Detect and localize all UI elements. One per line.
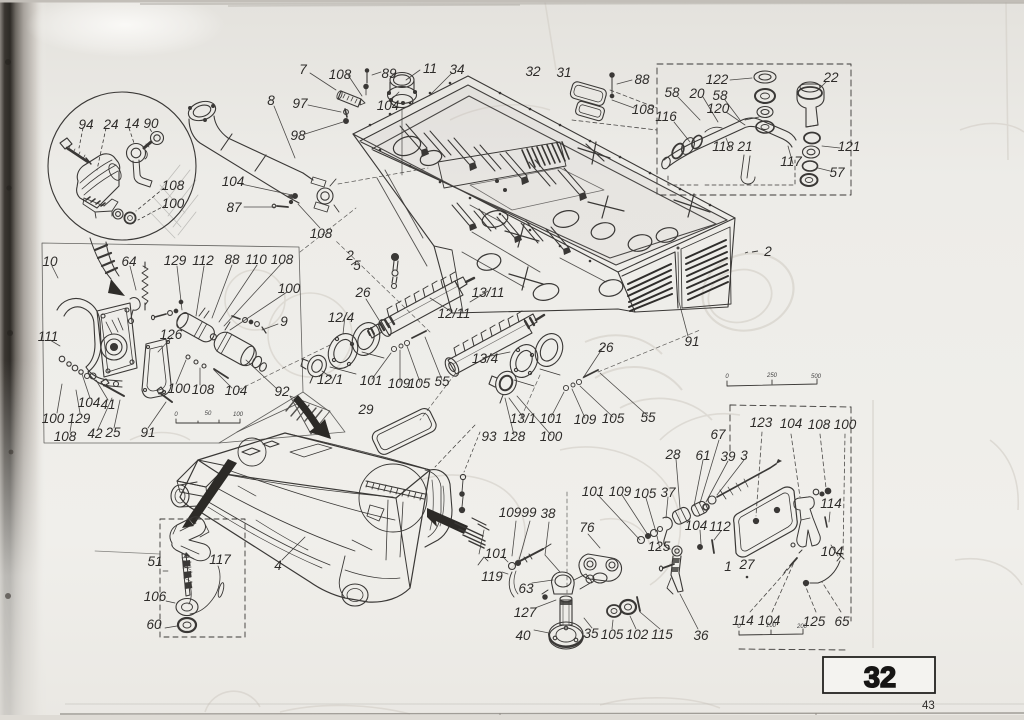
svg-text:11: 11 bbox=[423, 61, 437, 76]
svg-text:108: 108 bbox=[808, 417, 831, 432]
svg-text:109: 109 bbox=[609, 484, 632, 499]
svg-text:200: 200 bbox=[796, 624, 808, 630]
svg-text:12/11: 12/11 bbox=[438, 306, 471, 321]
svg-text:111: 111 bbox=[38, 329, 59, 344]
svg-text:55: 55 bbox=[434, 374, 450, 389]
svg-text:101: 101 bbox=[485, 546, 508, 561]
svg-text:100: 100 bbox=[233, 412, 244, 418]
svg-text:13/4: 13/4 bbox=[472, 351, 498, 366]
svg-text:108: 108 bbox=[329, 67, 352, 82]
svg-text:108: 108 bbox=[162, 178, 185, 193]
svg-text:128: 128 bbox=[503, 429, 526, 444]
svg-text:100: 100 bbox=[42, 411, 65, 426]
svg-text:118: 118 bbox=[712, 139, 734, 154]
svg-text:34: 34 bbox=[449, 62, 464, 77]
svg-text:88: 88 bbox=[224, 252, 240, 267]
svg-text:106: 106 bbox=[144, 589, 167, 604]
svg-text:108: 108 bbox=[54, 429, 77, 444]
svg-text:109: 109 bbox=[499, 505, 522, 520]
svg-text:88: 88 bbox=[634, 72, 650, 87]
svg-text:24: 24 bbox=[102, 117, 118, 132]
svg-text:100: 100 bbox=[168, 381, 191, 396]
svg-text:122: 122 bbox=[706, 72, 729, 87]
svg-text:21: 21 bbox=[736, 139, 752, 154]
svg-text:13/11: 13/11 bbox=[472, 285, 505, 300]
svg-text:65: 65 bbox=[834, 614, 850, 629]
svg-text:121: 121 bbox=[838, 139, 861, 154]
svg-text:104: 104 bbox=[377, 98, 400, 113]
svg-text:91: 91 bbox=[684, 334, 699, 349]
svg-text:32: 32 bbox=[525, 64, 541, 79]
svg-text:112: 112 bbox=[709, 519, 731, 534]
svg-text:29: 29 bbox=[357, 402, 374, 417]
svg-text:51: 51 bbox=[147, 554, 162, 569]
svg-text:4: 4 bbox=[274, 558, 282, 573]
svg-text:101: 101 bbox=[582, 484, 605, 499]
svg-text:38: 38 bbox=[540, 506, 556, 521]
svg-text:104: 104 bbox=[821, 544, 844, 559]
svg-text:91: 91 bbox=[140, 425, 155, 440]
svg-text:110: 110 bbox=[245, 252, 267, 267]
svg-text:42: 42 bbox=[87, 426, 103, 441]
svg-text:100: 100 bbox=[540, 429, 563, 444]
svg-text:116: 116 bbox=[655, 109, 677, 124]
svg-text:100: 100 bbox=[834, 417, 857, 432]
svg-text:101: 101 bbox=[540, 411, 563, 426]
svg-text:32: 32 bbox=[864, 662, 896, 694]
svg-text:101: 101 bbox=[360, 373, 383, 388]
svg-text:94: 94 bbox=[78, 117, 93, 132]
svg-text:36: 36 bbox=[693, 628, 709, 643]
svg-text:105: 105 bbox=[602, 411, 625, 426]
svg-text:99: 99 bbox=[521, 505, 537, 520]
svg-text:20: 20 bbox=[688, 86, 705, 101]
svg-text:108: 108 bbox=[271, 252, 294, 267]
svg-text:104: 104 bbox=[222, 174, 245, 189]
svg-text:5: 5 bbox=[353, 258, 361, 273]
svg-text:50: 50 bbox=[205, 411, 212, 417]
svg-text:2: 2 bbox=[763, 244, 772, 259]
svg-text:100: 100 bbox=[278, 281, 301, 296]
svg-text:119: 119 bbox=[481, 569, 503, 584]
svg-text:93: 93 bbox=[481, 429, 497, 444]
svg-text:40: 40 bbox=[515, 628, 531, 643]
svg-text:57: 57 bbox=[829, 165, 845, 180]
svg-text:98: 98 bbox=[290, 128, 306, 143]
svg-text:87: 87 bbox=[226, 200, 242, 215]
svg-text:108: 108 bbox=[632, 102, 655, 117]
svg-text:129: 129 bbox=[68, 411, 91, 426]
svg-text:100: 100 bbox=[162, 196, 185, 211]
svg-text:105: 105 bbox=[408, 376, 431, 391]
svg-text:60: 60 bbox=[146, 617, 162, 632]
svg-text:26: 26 bbox=[354, 285, 371, 300]
svg-text:125: 125 bbox=[648, 539, 671, 554]
svg-text:14: 14 bbox=[124, 116, 139, 131]
svg-text:114: 114 bbox=[732, 613, 754, 628]
svg-text:102: 102 bbox=[626, 627, 649, 642]
svg-text:28: 28 bbox=[664, 447, 681, 462]
svg-text:12/1: 12/1 bbox=[317, 372, 343, 387]
svg-text:43: 43 bbox=[922, 700, 935, 712]
svg-text:108: 108 bbox=[192, 382, 215, 397]
svg-text:109: 109 bbox=[574, 412, 597, 427]
svg-text:104: 104 bbox=[78, 395, 101, 410]
svg-text:105: 105 bbox=[634, 486, 657, 501]
svg-text:115: 115 bbox=[651, 627, 673, 642]
svg-text:37: 37 bbox=[660, 485, 676, 500]
svg-text:41: 41 bbox=[100, 397, 115, 412]
svg-text:104: 104 bbox=[225, 383, 248, 398]
svg-text:129: 129 bbox=[164, 253, 187, 268]
svg-text:127: 127 bbox=[514, 605, 537, 620]
svg-text:64: 64 bbox=[121, 254, 136, 269]
svg-text:123: 123 bbox=[750, 415, 773, 430]
svg-text:61: 61 bbox=[695, 448, 710, 463]
svg-text:3: 3 bbox=[740, 448, 748, 463]
svg-text:120: 120 bbox=[707, 101, 730, 116]
svg-text:97: 97 bbox=[292, 96, 308, 111]
svg-text:76: 76 bbox=[579, 520, 595, 535]
svg-text:108: 108 bbox=[310, 226, 333, 241]
svg-text:126: 126 bbox=[160, 327, 183, 342]
svg-text:22: 22 bbox=[822, 70, 839, 85]
svg-text:31: 31 bbox=[556, 65, 571, 80]
svg-text:104: 104 bbox=[780, 416, 803, 431]
svg-text:114: 114 bbox=[820, 496, 842, 511]
svg-text:58: 58 bbox=[664, 85, 680, 100]
svg-text:10: 10 bbox=[42, 254, 58, 269]
svg-text:105: 105 bbox=[601, 627, 624, 642]
svg-text:92: 92 bbox=[274, 384, 290, 399]
svg-text:7: 7 bbox=[299, 62, 307, 77]
svg-text:500: 500 bbox=[811, 374, 822, 380]
svg-text:26: 26 bbox=[597, 340, 614, 355]
svg-text:12/4: 12/4 bbox=[328, 310, 354, 325]
svg-text:117: 117 bbox=[780, 154, 802, 169]
svg-text:27: 27 bbox=[738, 557, 755, 572]
svg-text:13/1: 13/1 bbox=[510, 411, 536, 426]
svg-text:104: 104 bbox=[685, 518, 708, 533]
svg-text:89: 89 bbox=[381, 66, 397, 81]
svg-text:8: 8 bbox=[267, 93, 275, 108]
svg-text:1: 1 bbox=[724, 559, 732, 574]
svg-text:9: 9 bbox=[280, 314, 288, 329]
svg-text:63: 63 bbox=[518, 581, 534, 596]
svg-text:250: 250 bbox=[766, 373, 778, 379]
svg-text:112: 112 bbox=[192, 253, 214, 268]
svg-text:25: 25 bbox=[104, 425, 121, 440]
svg-text:67: 67 bbox=[710, 427, 726, 442]
svg-text:39: 39 bbox=[720, 449, 736, 464]
svg-text:90: 90 bbox=[143, 116, 159, 131]
svg-text:35: 35 bbox=[583, 626, 599, 641]
svg-text:55: 55 bbox=[640, 410, 656, 425]
svg-text:117: 117 bbox=[209, 552, 231, 567]
svg-text:100: 100 bbox=[766, 623, 777, 629]
